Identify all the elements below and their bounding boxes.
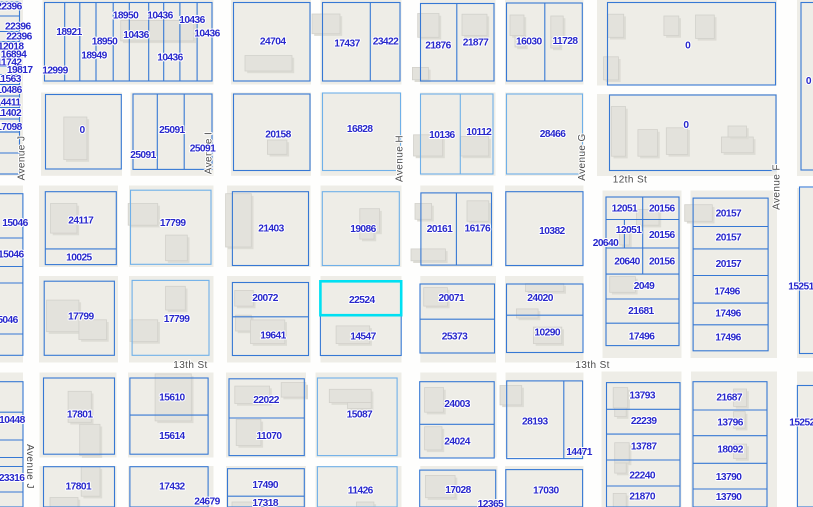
svg-text:13787: 13787 — [631, 441, 657, 452]
svg-text:13793: 13793 — [629, 391, 655, 402]
svg-text:13th St: 13th St — [173, 360, 208, 371]
svg-text:22240: 22240 — [629, 470, 655, 481]
svg-text:17318: 17318 — [252, 498, 278, 507]
svg-text:11070: 11070 — [256, 431, 282, 442]
svg-text:Avenue J: Avenue J — [24, 444, 35, 489]
svg-text:24117: 24117 — [68, 216, 94, 227]
svg-text:22396: 22396 — [0, 2, 23, 13]
svg-text:Avenue F: Avenue F — [772, 164, 783, 210]
svg-text:17432: 17432 — [159, 482, 185, 493]
svg-text:24020: 24020 — [527, 293, 553, 304]
svg-text:18950: 18950 — [113, 11, 139, 22]
svg-text:17801: 17801 — [67, 410, 93, 421]
svg-text:10025: 10025 — [66, 253, 92, 264]
svg-text:13th St: 13th St — [575, 360, 610, 371]
svg-text:20640: 20640 — [593, 238, 619, 249]
svg-text:11728: 11728 — [552, 36, 578, 47]
svg-text:16030: 16030 — [516, 37, 542, 48]
svg-text:10436: 10436 — [179, 15, 205, 26]
svg-text:Avenue H: Avenue H — [394, 135, 405, 182]
svg-text:14411: 14411 — [0, 97, 21, 108]
svg-text:20157: 20157 — [716, 233, 742, 244]
svg-text:13796: 13796 — [717, 417, 743, 428]
svg-text:12051: 12051 — [612, 204, 638, 215]
svg-text:24704: 24704 — [260, 37, 286, 48]
svg-text:14471: 14471 — [566, 447, 592, 458]
svg-text:10436: 10436 — [157, 53, 183, 64]
svg-text:17496: 17496 — [715, 309, 741, 320]
svg-text:16828: 16828 — [347, 124, 373, 135]
svg-text:10436: 10436 — [194, 29, 220, 40]
svg-text:28466: 28466 — [540, 129, 566, 140]
svg-text:Avenue J: Avenue J — [17, 136, 28, 181]
svg-text:22022: 22022 — [253, 395, 279, 406]
svg-text:15046: 15046 — [0, 315, 19, 326]
svg-text:21870: 21870 — [629, 492, 655, 503]
svg-text:17437: 17437 — [334, 39, 360, 50]
svg-text:0: 0 — [685, 40, 691, 51]
svg-text:12999: 12999 — [42, 66, 68, 77]
svg-text:15046: 15046 — [0, 250, 24, 261]
svg-text:20156: 20156 — [649, 230, 675, 241]
svg-text:21876: 21876 — [425, 40, 451, 51]
svg-text:17801: 17801 — [66, 482, 92, 493]
svg-text:20072: 20072 — [252, 293, 278, 304]
svg-text:20640: 20640 — [614, 257, 640, 268]
svg-text:17496: 17496 — [714, 286, 740, 297]
svg-text:20156: 20156 — [649, 204, 675, 215]
svg-text:10290: 10290 — [534, 328, 560, 339]
svg-text:20156: 20156 — [649, 257, 675, 268]
svg-text:24003: 24003 — [444, 399, 470, 410]
svg-text:22524: 22524 — [349, 295, 375, 306]
svg-text:12365: 12365 — [478, 499, 504, 507]
svg-text:21687: 21687 — [716, 393, 742, 404]
svg-text:20161: 20161 — [427, 224, 453, 235]
svg-text:23422: 23422 — [373, 37, 399, 48]
svg-text:2049: 2049 — [634, 281, 655, 292]
svg-text:15614: 15614 — [159, 431, 185, 442]
svg-text:18921: 18921 — [56, 27, 82, 38]
svg-text:10436: 10436 — [123, 30, 149, 41]
svg-text:17496: 17496 — [629, 331, 655, 342]
svg-text:17799: 17799 — [160, 218, 186, 229]
svg-text:28193: 28193 — [522, 416, 548, 427]
svg-text:10112: 10112 — [466, 127, 492, 138]
svg-text:24679: 24679 — [194, 497, 220, 507]
svg-text:15046: 15046 — [2, 218, 28, 229]
svg-text:22239: 22239 — [631, 416, 657, 427]
svg-text:23316: 23316 — [0, 473, 25, 484]
svg-text:18092: 18092 — [717, 444, 743, 455]
svg-text:20157: 20157 — [716, 208, 742, 219]
svg-text:21877: 21877 — [463, 38, 489, 49]
svg-text:14547: 14547 — [350, 332, 376, 343]
svg-text:11402: 11402 — [0, 108, 22, 119]
svg-text:25091: 25091 — [130, 150, 156, 161]
svg-text:15252: 15252 — [789, 418, 813, 429]
svg-text:0: 0 — [79, 125, 85, 136]
svg-text:17098: 17098 — [0, 122, 23, 133]
svg-text:10448: 10448 — [0, 415, 26, 426]
svg-text:21681: 21681 — [628, 306, 654, 317]
svg-text:11426: 11426 — [348, 485, 374, 496]
svg-text:10136: 10136 — [429, 130, 455, 141]
svg-text:11563: 11563 — [0, 74, 22, 85]
svg-text:24024: 24024 — [444, 437, 470, 448]
svg-text:20158: 20158 — [265, 130, 291, 141]
svg-text:10382: 10382 — [539, 226, 565, 237]
svg-text:25373: 25373 — [442, 332, 468, 343]
svg-text:17496: 17496 — [715, 333, 741, 344]
svg-text:19086: 19086 — [350, 224, 376, 235]
svg-text:25091: 25091 — [159, 125, 185, 136]
svg-text:Avenue G: Avenue G — [577, 133, 588, 181]
svg-text:13790: 13790 — [716, 492, 742, 503]
svg-text:19641: 19641 — [260, 331, 286, 342]
svg-text:17028: 17028 — [445, 485, 471, 496]
svg-text:20071: 20071 — [439, 293, 465, 304]
svg-text:20157: 20157 — [716, 259, 742, 270]
svg-text:12th St: 12th St — [613, 175, 648, 186]
svg-text:12051: 12051 — [616, 225, 642, 236]
svg-text:17799: 17799 — [68, 312, 94, 323]
svg-text:25091: 25091 — [190, 144, 216, 155]
svg-text:17490: 17490 — [252, 480, 278, 491]
svg-text:17799: 17799 — [164, 314, 190, 325]
svg-text:10436: 10436 — [147, 11, 173, 22]
svg-text:15610: 15610 — [159, 393, 185, 404]
svg-text:15251: 15251 — [788, 282, 813, 293]
svg-text:18949: 18949 — [81, 51, 107, 62]
svg-text:15087: 15087 — [347, 410, 373, 421]
svg-text:0: 0 — [806, 76, 812, 87]
svg-text:21403: 21403 — [258, 223, 284, 234]
svg-text:18950: 18950 — [92, 37, 118, 48]
svg-text:0: 0 — [683, 120, 689, 131]
svg-text:10486: 10486 — [0, 85, 23, 96]
svg-text:13790: 13790 — [716, 472, 742, 483]
svg-text:16176: 16176 — [465, 223, 491, 234]
svg-text:17030: 17030 — [533, 485, 559, 496]
